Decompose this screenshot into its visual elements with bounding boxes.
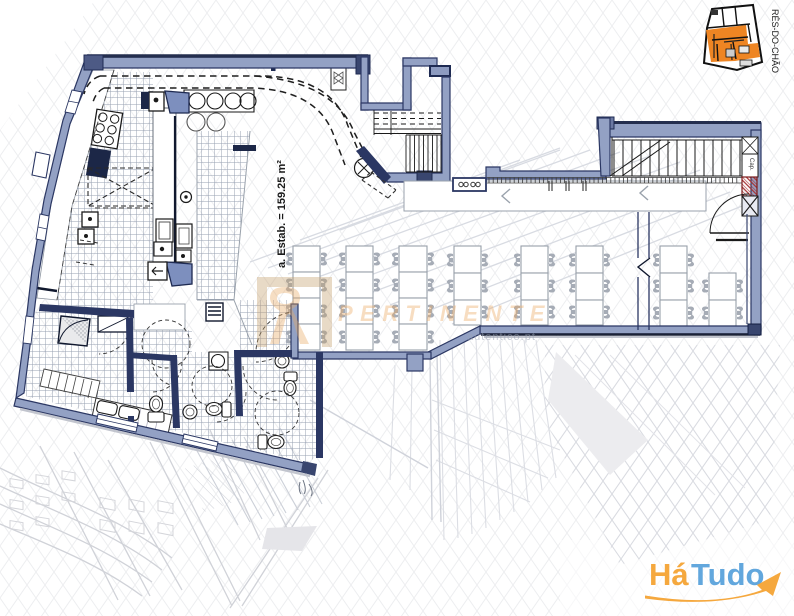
svg-text:RÉS-DO-CHÃO: RÉS-DO-CHÃO [770,9,780,73]
svg-text:Tudo: Tudo [691,557,764,592]
svg-text:Cap.: Cap. [748,158,754,171]
svg-text:autentico.pt: autentico.pt [467,331,536,343]
svg-text:PERTINENTE: PERTINENTE [338,301,552,326]
svg-text:a. Estab. = 159.25 m²: a. Estab. = 159.25 m² [276,160,288,268]
svg-text:Há: Há [649,557,689,592]
